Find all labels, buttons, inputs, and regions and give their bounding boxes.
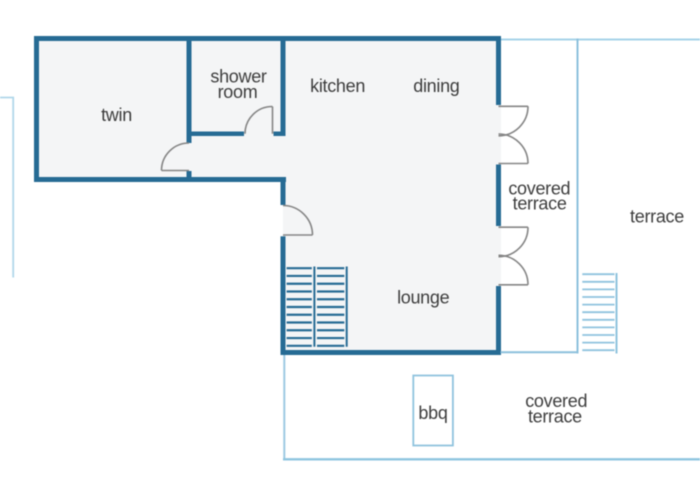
svg-text:bbq: bbq — [418, 403, 447, 423]
svg-text:terrace: terrace — [630, 207, 684, 227]
svg-text:lounge: lounge — [397, 288, 450, 308]
svg-text:room: room — [218, 82, 258, 102]
svg-text:terrace: terrace — [513, 194, 567, 214]
svg-text:dining: dining — [413, 76, 459, 96]
svg-text:terrace: terrace — [528, 406, 582, 426]
svg-text:kitchen: kitchen — [310, 76, 365, 96]
svg-text:twin: twin — [101, 105, 132, 125]
